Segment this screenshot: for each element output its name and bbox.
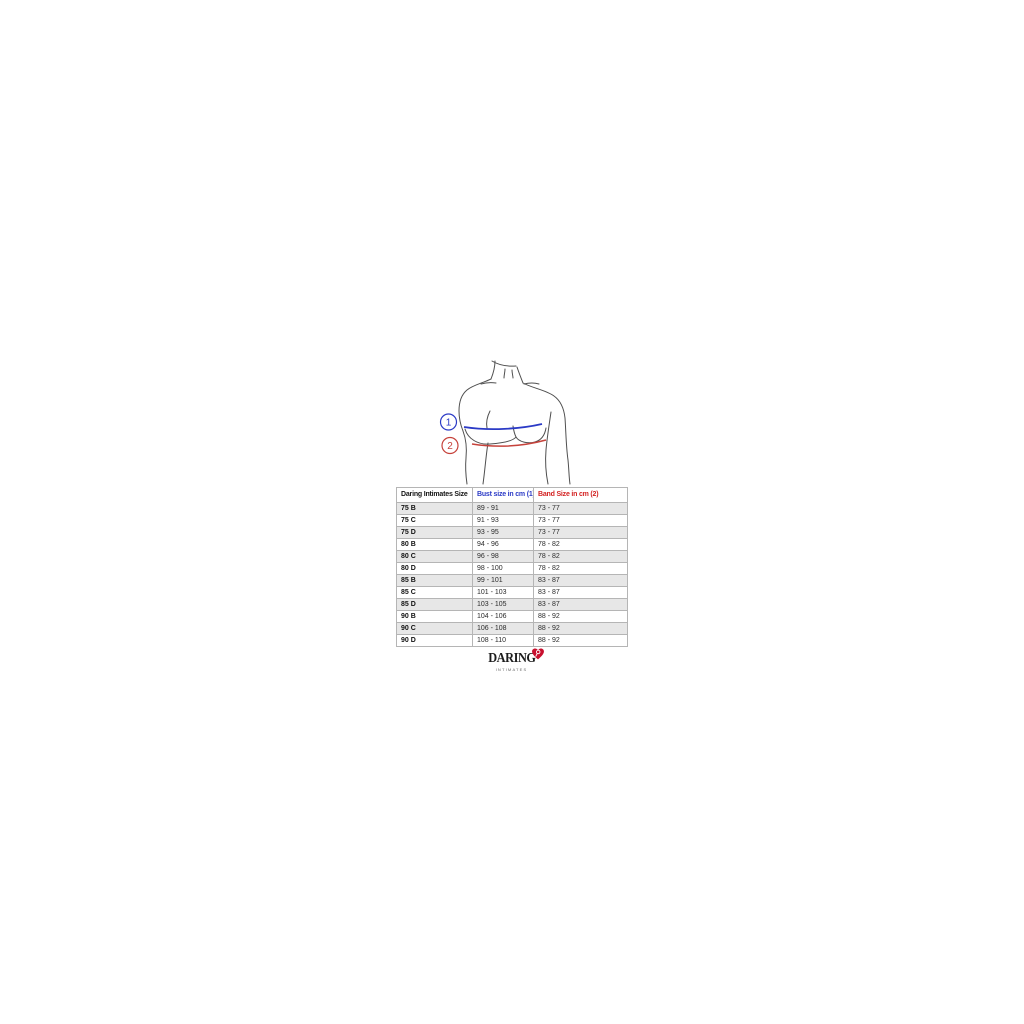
band-value: 73 - 77 (534, 527, 628, 539)
size-value: 80 B (397, 539, 473, 551)
size-table: Daring Intimates Size Bust size in cm (1… (396, 487, 628, 647)
band-value: 83 - 87 (534, 575, 628, 587)
bust-value: 91 - 93 (473, 515, 534, 527)
size-chart-image: 1 2 Daring Intimates Size Bust size in c… (0, 0, 1024, 1024)
size-value: 80 C (397, 551, 473, 563)
band-value: 78 - 82 (534, 563, 628, 575)
brand-wordmark: DARING (488, 651, 535, 667)
size-value: 90 B (397, 611, 473, 623)
callout-1-number: 1 (446, 418, 452, 429)
callout-1: 1 (441, 414, 457, 430)
bust-value: 106 - 108 (473, 623, 534, 635)
size-value: 80 D (397, 563, 473, 575)
callout-2-number: 2 (447, 441, 453, 452)
bust-measure-line (464, 424, 542, 429)
table-row: 80 B 94 - 96 78 - 82 (397, 539, 628, 551)
band-value: 78 - 82 (534, 551, 628, 563)
table-row: 90 D 108 - 110 88 - 92 (397, 635, 628, 647)
band-value: 88 - 92 (534, 635, 628, 647)
size-value: 75 C (397, 515, 473, 527)
table-row: 80 D 98 - 100 78 - 82 (397, 563, 628, 575)
band-value: 83 - 87 (534, 599, 628, 611)
table-row: 85 C 101 - 103 83 - 87 (397, 587, 628, 599)
bust-value: 99 - 101 (473, 575, 534, 587)
size-value: 85 C (397, 587, 473, 599)
callout-2: 2 (442, 438, 458, 454)
band-value: 88 - 92 (534, 623, 628, 635)
table-row: 90 C 106 - 108 88 - 92 (397, 623, 628, 635)
size-value: 75 D (397, 527, 473, 539)
band-value: 78 - 82 (534, 539, 628, 551)
column-header-band: Band Size in cm (2) (534, 488, 628, 503)
size-value: 90 D (397, 635, 473, 647)
column-header-size: Daring Intimates Size (397, 488, 473, 503)
table-row: 80 C 96 - 98 78 - 82 (397, 551, 628, 563)
table-row: 85 D 103 - 105 83 - 87 (397, 599, 628, 611)
table-row: 75 D 93 - 95 73 - 77 (397, 527, 628, 539)
band-value: 88 - 92 (534, 611, 628, 623)
table-header-row: Daring Intimates Size Bust size in cm (1… (397, 488, 628, 503)
table-row: 85 B 99 - 101 83 - 87 (397, 575, 628, 587)
bust-value: 89 - 91 (473, 503, 534, 515)
bust-value: 93 - 95 (473, 527, 534, 539)
table-row: 75 B 89 - 91 73 - 77 (397, 503, 628, 515)
torso-outline (459, 361, 570, 484)
bust-value: 108 - 110 (473, 635, 534, 647)
brand-logo: DARING INTIMATES (396, 649, 627, 676)
bust-value: 96 - 98 (473, 551, 534, 563)
measurement-figure: 1 2 (420, 340, 590, 485)
heart-icon (531, 647, 545, 662)
size-value: 90 C (397, 623, 473, 635)
table-row: 75 C 91 - 93 73 - 77 (397, 515, 628, 527)
bust-value: 104 - 106 (473, 611, 534, 623)
band-value: 73 - 77 (534, 515, 628, 527)
band-value: 83 - 87 (534, 587, 628, 599)
bust-value: 101 - 103 (473, 587, 534, 599)
size-value: 85 B (397, 575, 473, 587)
bust-value: 98 - 100 (473, 563, 534, 575)
bust-value: 94 - 96 (473, 539, 534, 551)
band-value: 73 - 77 (534, 503, 628, 515)
size-value: 75 B (397, 503, 473, 515)
size-value: 85 D (397, 599, 473, 611)
column-header-bust: Bust size in cm (1) (473, 488, 534, 503)
brand-tagline: INTIMATES (485, 667, 539, 672)
bust-value: 103 - 105 (473, 599, 534, 611)
table-row: 90 B 104 - 106 88 - 92 (397, 611, 628, 623)
